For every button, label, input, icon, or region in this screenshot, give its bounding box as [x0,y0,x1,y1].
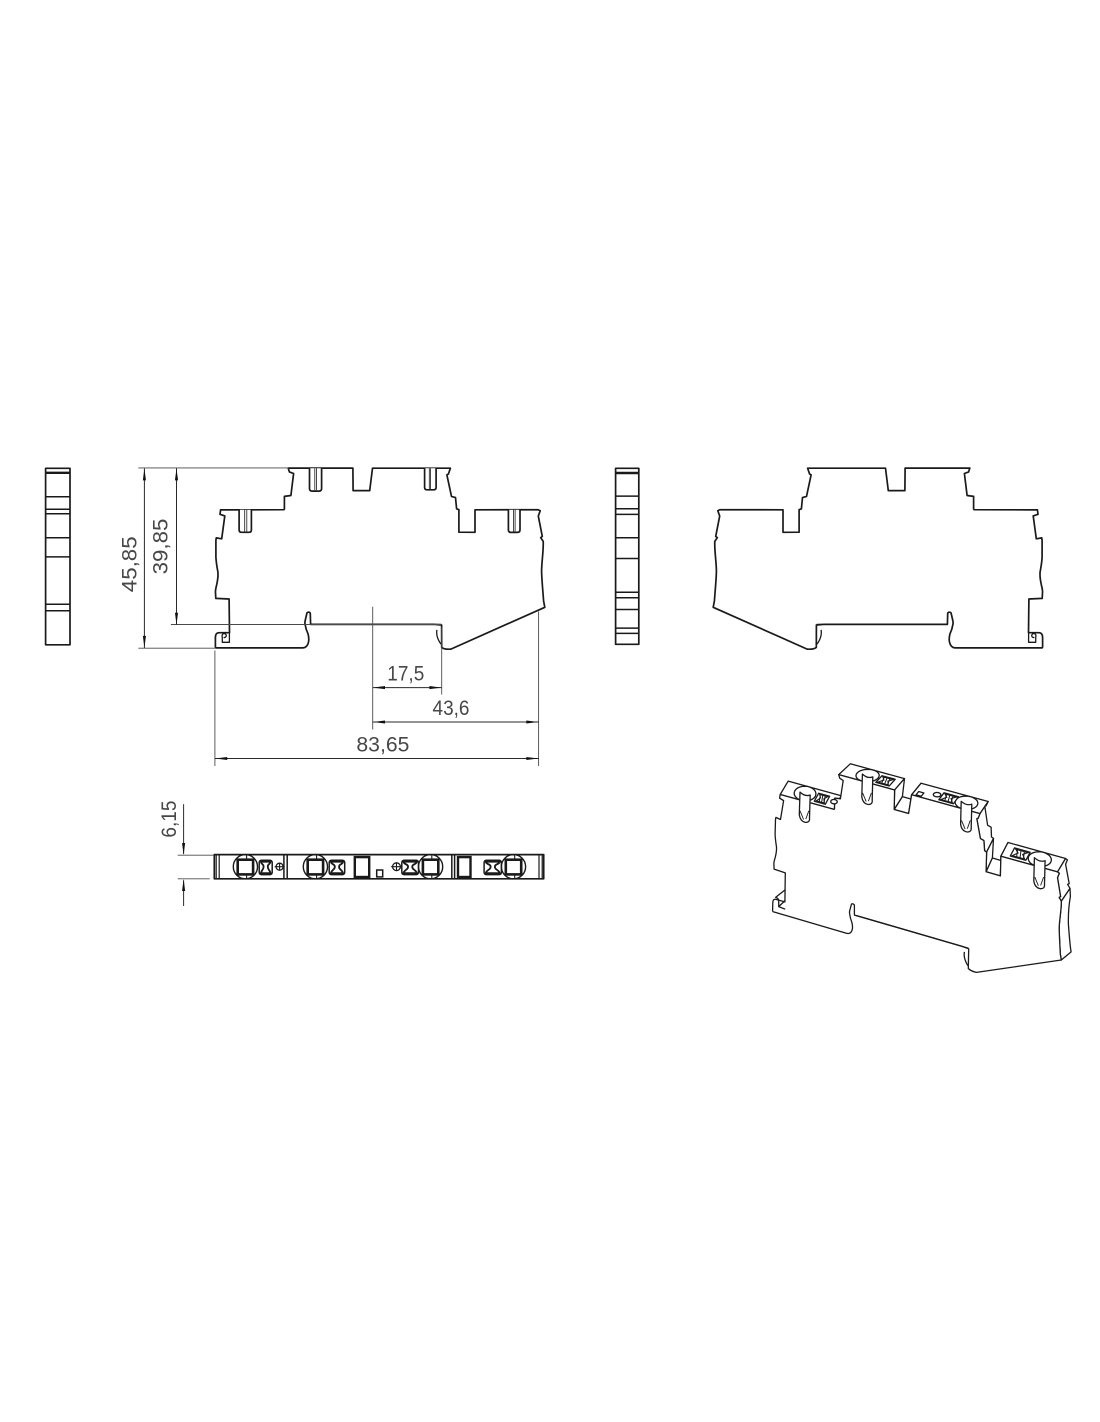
svg-text:83,65: 83,65 [356,732,409,756]
svg-text:45,85: 45,85 [118,536,142,592]
svg-text:17,5: 17,5 [387,662,424,686]
svg-text:39,85: 39,85 [148,519,172,575]
svg-text:6,15: 6,15 [157,801,181,838]
svg-text:43,6: 43,6 [433,696,470,720]
